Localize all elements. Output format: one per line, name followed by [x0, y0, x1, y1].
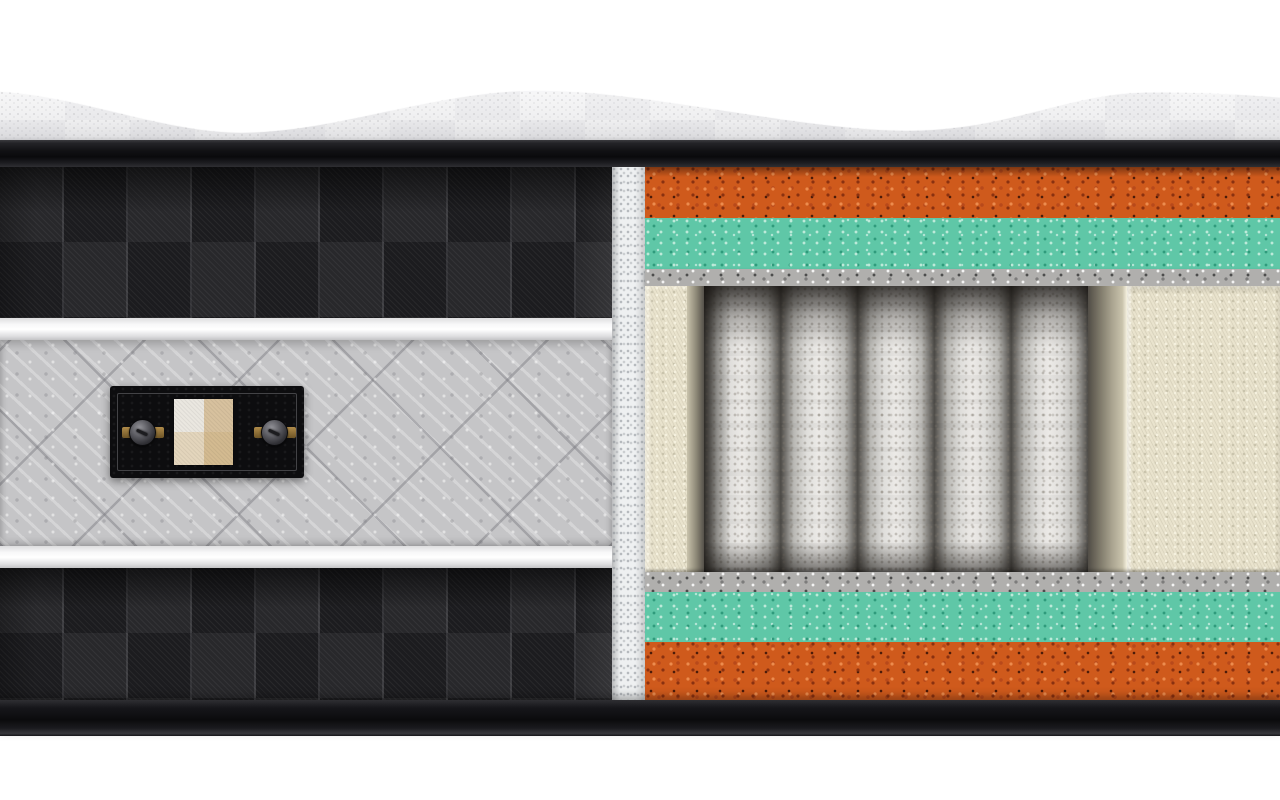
fabric-swatch-grid	[174, 399, 233, 465]
rivet-button-right	[261, 419, 288, 446]
top-piping-bar	[0, 140, 1280, 167]
swatch-quadrant-bottom-right	[204, 432, 234, 465]
gray-quilted-border-band	[0, 340, 612, 546]
edge-support-foam-left-side	[687, 286, 704, 574]
spring-left-shadow	[704, 286, 730, 572]
checkered-fabric-band-bottom	[0, 568, 612, 700]
edge-support-foam-right-front	[1127, 286, 1280, 574]
cut-edge-fabric-strip	[612, 167, 645, 700]
piping-shadow-overlay	[645, 167, 1280, 177]
bottom-piping-bar	[0, 700, 1280, 736]
swatch-quadrant-top-left	[174, 399, 204, 432]
white-piping-bar-upper	[0, 318, 612, 340]
fabric-shadow-overlay	[0, 167, 612, 318]
spring-top-shadow	[704, 286, 1147, 348]
side-fabric-panel	[0, 167, 612, 700]
checkered-fabric-band-top	[0, 167, 612, 318]
base-foam-layer	[645, 642, 1280, 700]
pocket-spring-core	[645, 286, 1280, 572]
felt-pad-lower	[645, 572, 1280, 592]
mattress-layer-cutaway	[645, 167, 1280, 700]
transition-foam-layer-bottom	[645, 592, 1280, 642]
rivet-screw-slot	[268, 429, 280, 437]
quilted-top-cover	[0, 0, 1280, 145]
rivet-screw-slot	[136, 429, 148, 437]
spring-bottom-shadow	[704, 542, 1147, 572]
swatch-quadrant-bottom-left	[174, 432, 204, 465]
mattress-cutaway-render	[0, 0, 1280, 800]
rivet-button-left	[129, 419, 156, 446]
fabric-shadow-overlay	[0, 568, 612, 700]
edge-support-foam-left-front	[645, 286, 687, 574]
white-piping-bar-lower	[0, 546, 612, 568]
transition-foam-layer	[645, 218, 1280, 269]
pocket-spring-coils	[704, 286, 1147, 572]
fabric-swatch-label	[110, 386, 304, 478]
swatch-quadrant-top-right	[204, 399, 234, 432]
edge-support-foam-right-side	[1088, 286, 1127, 574]
felt-pad-upper	[645, 269, 1280, 286]
